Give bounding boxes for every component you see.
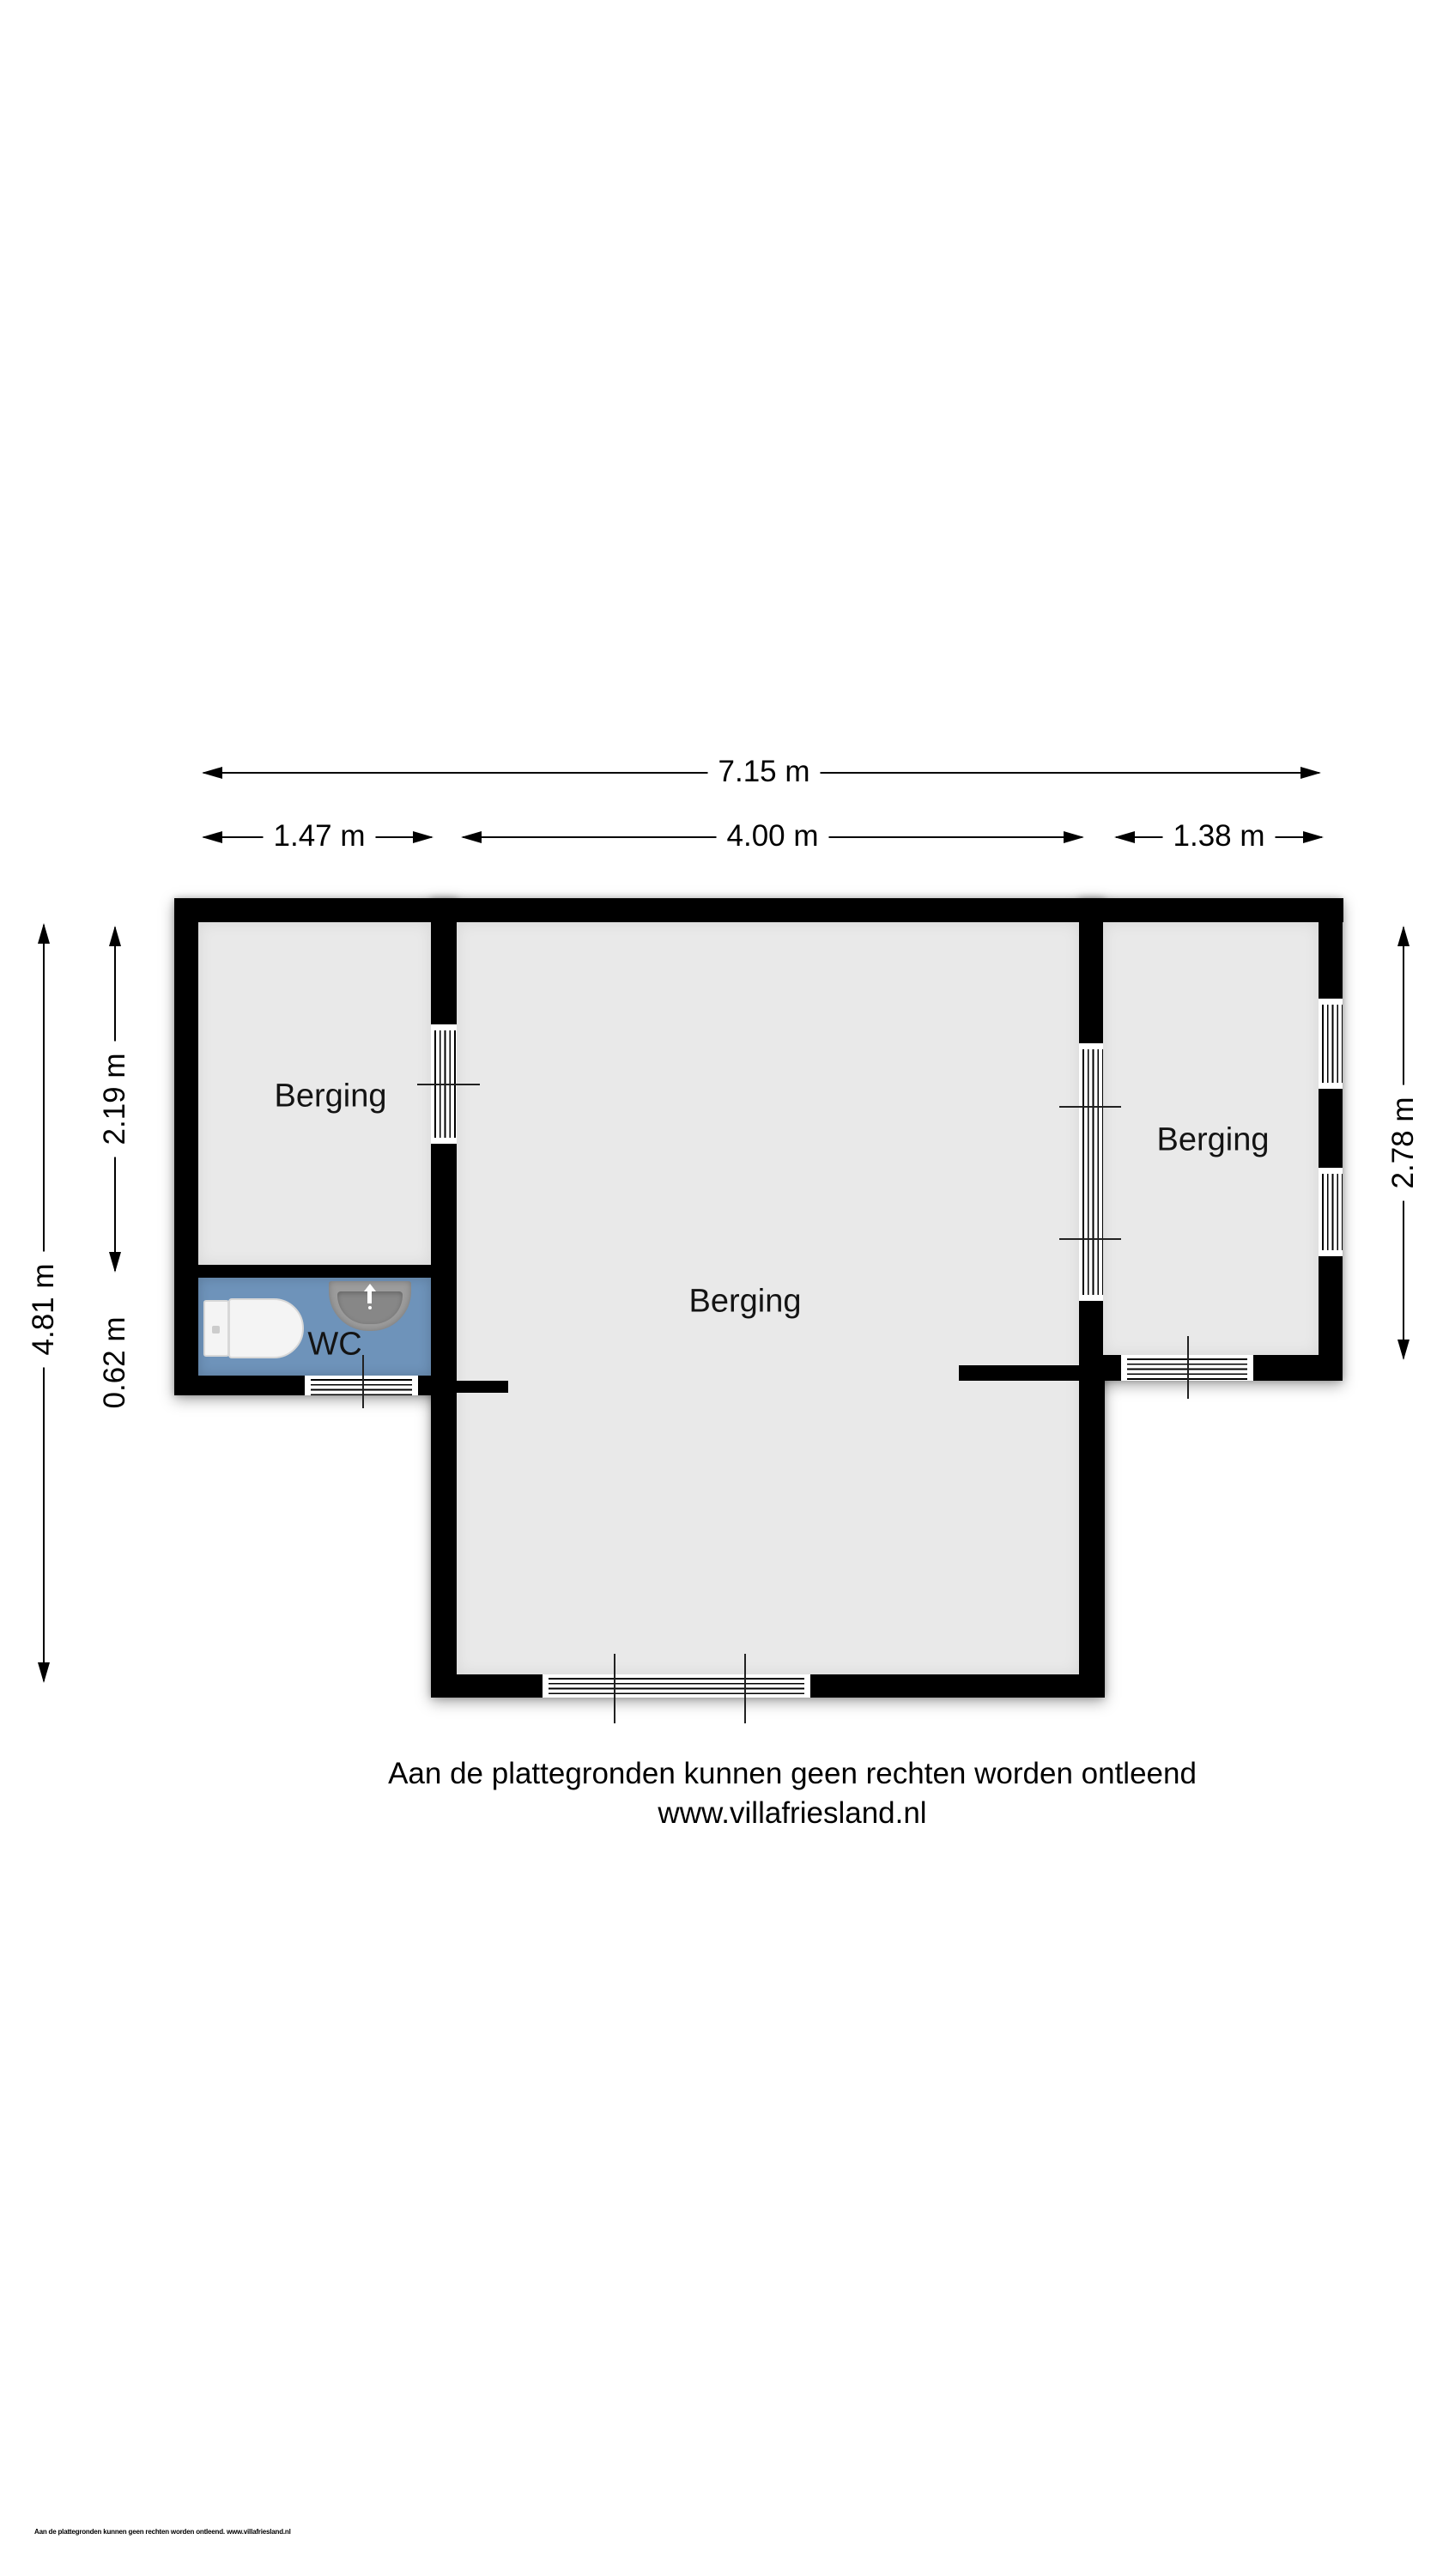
window-marker	[362, 1355, 364, 1408]
window-marker	[614, 1654, 615, 1723]
wall-top	[174, 898, 1343, 922]
window-right-wall-upper	[1319, 999, 1343, 1089]
dim-wc-height-label: 0.62 m	[99, 1305, 132, 1421]
dim-total-width-label: 7.15 m	[708, 756, 821, 789]
sink-faucet-icon	[368, 1306, 372, 1309]
dim-left-width-label: 1.47 m	[264, 820, 376, 854]
window-hatch	[1319, 1174, 1343, 1250]
window-marker	[417, 1084, 480, 1085]
window-hatch	[1079, 1049, 1103, 1295]
dim-left-room-height-label: 2.19 m	[99, 1042, 132, 1157]
window-hatch	[311, 1376, 412, 1395]
floorplan-page: 7.15 m 1.47 m 4.00 m 1.38 m 4.81 m 2.19 …	[0, 0, 1449, 2576]
dim-center-width-label: 4.00 m	[717, 820, 829, 854]
dim-right-room-height-label: 2.78 m	[1387, 1085, 1421, 1201]
disclaimer-text: Aan de plattegronden kunnen geen rechten…	[388, 1757, 1197, 1791]
dim-total-height-label: 4.81 m	[27, 1252, 61, 1368]
room-label-wc: WC	[307, 1327, 361, 1364]
wall-stub-left	[455, 1381, 508, 1393]
dim-right-width-label: 1.38 m	[1163, 820, 1276, 854]
window-marker	[1059, 1238, 1121, 1240]
wall-wc-divider	[198, 1265, 433, 1278]
window-marker	[1187, 1336, 1189, 1399]
window-center-bottom	[543, 1674, 810, 1698]
toilet-bowl	[228, 1298, 304, 1358]
website-text: www.villafriesland.nl	[658, 1796, 926, 1831]
window-center-right-divider	[1079, 1043, 1103, 1301]
window-marker	[744, 1654, 746, 1723]
window-wc-bottom	[305, 1376, 418, 1395]
window-hatch	[1319, 1005, 1343, 1083]
room-label-berging-center: Berging	[689, 1284, 802, 1321]
wall-left	[174, 898, 198, 1395]
footer-note: Aan de plattegronden kunnen geen rechten…	[34, 2528, 291, 2536]
room-label-berging-left: Berging	[275, 1078, 387, 1115]
wall-right	[1319, 898, 1343, 1381]
window-right-wall-lower	[1319, 1168, 1343, 1256]
sink-faucet-icon	[367, 1291, 372, 1303]
toilet-flush-button	[212, 1326, 220, 1334]
wall-divider-center-right	[1079, 914, 1103, 1698]
window-hatch	[549, 1674, 804, 1698]
wall-stub-right	[959, 1365, 1079, 1381]
window-marker	[1059, 1106, 1121, 1108]
room-label-berging-right: Berging	[1157, 1122, 1270, 1159]
